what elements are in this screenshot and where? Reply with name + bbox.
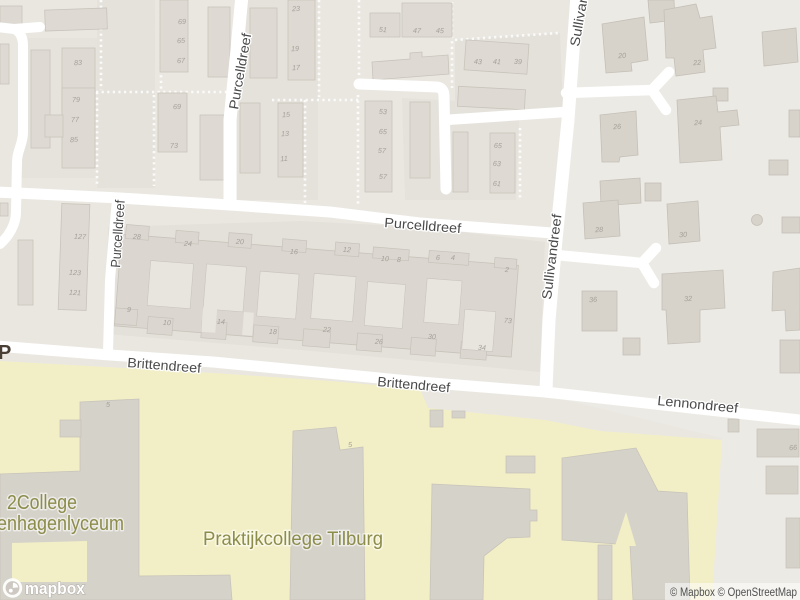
svg-text:18: 18 — [269, 327, 278, 337]
svg-text:41: 41 — [493, 57, 502, 67]
svg-text:67: 67 — [177, 56, 186, 65]
svg-text:121: 121 — [69, 288, 81, 298]
svg-text:83: 83 — [74, 58, 82, 67]
svg-text:mapbox: mapbox — [25, 579, 85, 598]
svg-text:30: 30 — [679, 230, 688, 240]
svg-text:P: P — [0, 342, 11, 364]
svg-text:20: 20 — [617, 51, 627, 61]
svg-text:15: 15 — [282, 110, 291, 119]
svg-text:24: 24 — [693, 118, 703, 128]
svg-text:53: 53 — [379, 107, 388, 117]
svg-text:20: 20 — [235, 237, 245, 247]
svg-text:12: 12 — [343, 245, 352, 255]
svg-text:69: 69 — [178, 17, 186, 26]
svg-text:51: 51 — [379, 25, 388, 35]
svg-text:73: 73 — [504, 316, 513, 326]
svg-text:14: 14 — [217, 317, 226, 327]
svg-text:11: 11 — [280, 154, 288, 163]
svg-text:8: 8 — [397, 255, 402, 264]
svg-text:Praktijkcollege Tilburg: Praktijkcollege Tilburg — [203, 528, 383, 550]
svg-text:13: 13 — [281, 129, 289, 138]
svg-text:22: 22 — [692, 58, 702, 68]
svg-text:9: 9 — [127, 305, 132, 314]
svg-text:23: 23 — [291, 4, 300, 13]
svg-text:2: 2 — [504, 265, 510, 274]
svg-text:32: 32 — [684, 294, 693, 304]
svg-text:10: 10 — [163, 318, 172, 328]
svg-text:6: 6 — [436, 253, 441, 262]
svg-text:2College: 2College — [7, 491, 77, 514]
svg-text:28: 28 — [594, 225, 604, 235]
svg-text:30: 30 — [428, 332, 437, 342]
svg-text:39: 39 — [514, 57, 523, 67]
svg-text:36: 36 — [589, 295, 598, 305]
svg-text:26: 26 — [374, 337, 384, 347]
svg-text:10: 10 — [381, 254, 390, 264]
svg-text:77: 77 — [71, 115, 80, 124]
svg-text:16: 16 — [290, 247, 299, 257]
svg-text:© Mapbox © OpenStreetMap: © Mapbox © OpenStreetMap — [670, 587, 797, 599]
svg-text:69: 69 — [173, 102, 181, 111]
svg-text:66: 66 — [789, 443, 798, 453]
svg-text:61: 61 — [493, 179, 502, 189]
svg-text:73: 73 — [170, 141, 178, 150]
svg-text:34: 34 — [478, 343, 487, 353]
svg-text:benhagenlyceum: benhagenlyceum — [0, 512, 124, 535]
svg-text:85: 85 — [70, 135, 79, 144]
svg-text:17: 17 — [292, 63, 301, 72]
svg-text:26: 26 — [612, 122, 622, 132]
svg-text:4: 4 — [451, 253, 456, 262]
svg-text:79: 79 — [72, 95, 80, 104]
svg-text:19: 19 — [291, 44, 299, 53]
svg-text:28: 28 — [132, 232, 142, 242]
svg-text:123: 123 — [69, 268, 81, 278]
svg-text:43: 43 — [474, 57, 483, 67]
svg-text:65: 65 — [177, 36, 186, 45]
svg-text:22: 22 — [322, 325, 332, 335]
svg-text:24: 24 — [183, 239, 193, 249]
svg-text:127: 127 — [74, 232, 87, 242]
svg-text:63: 63 — [493, 159, 502, 169]
